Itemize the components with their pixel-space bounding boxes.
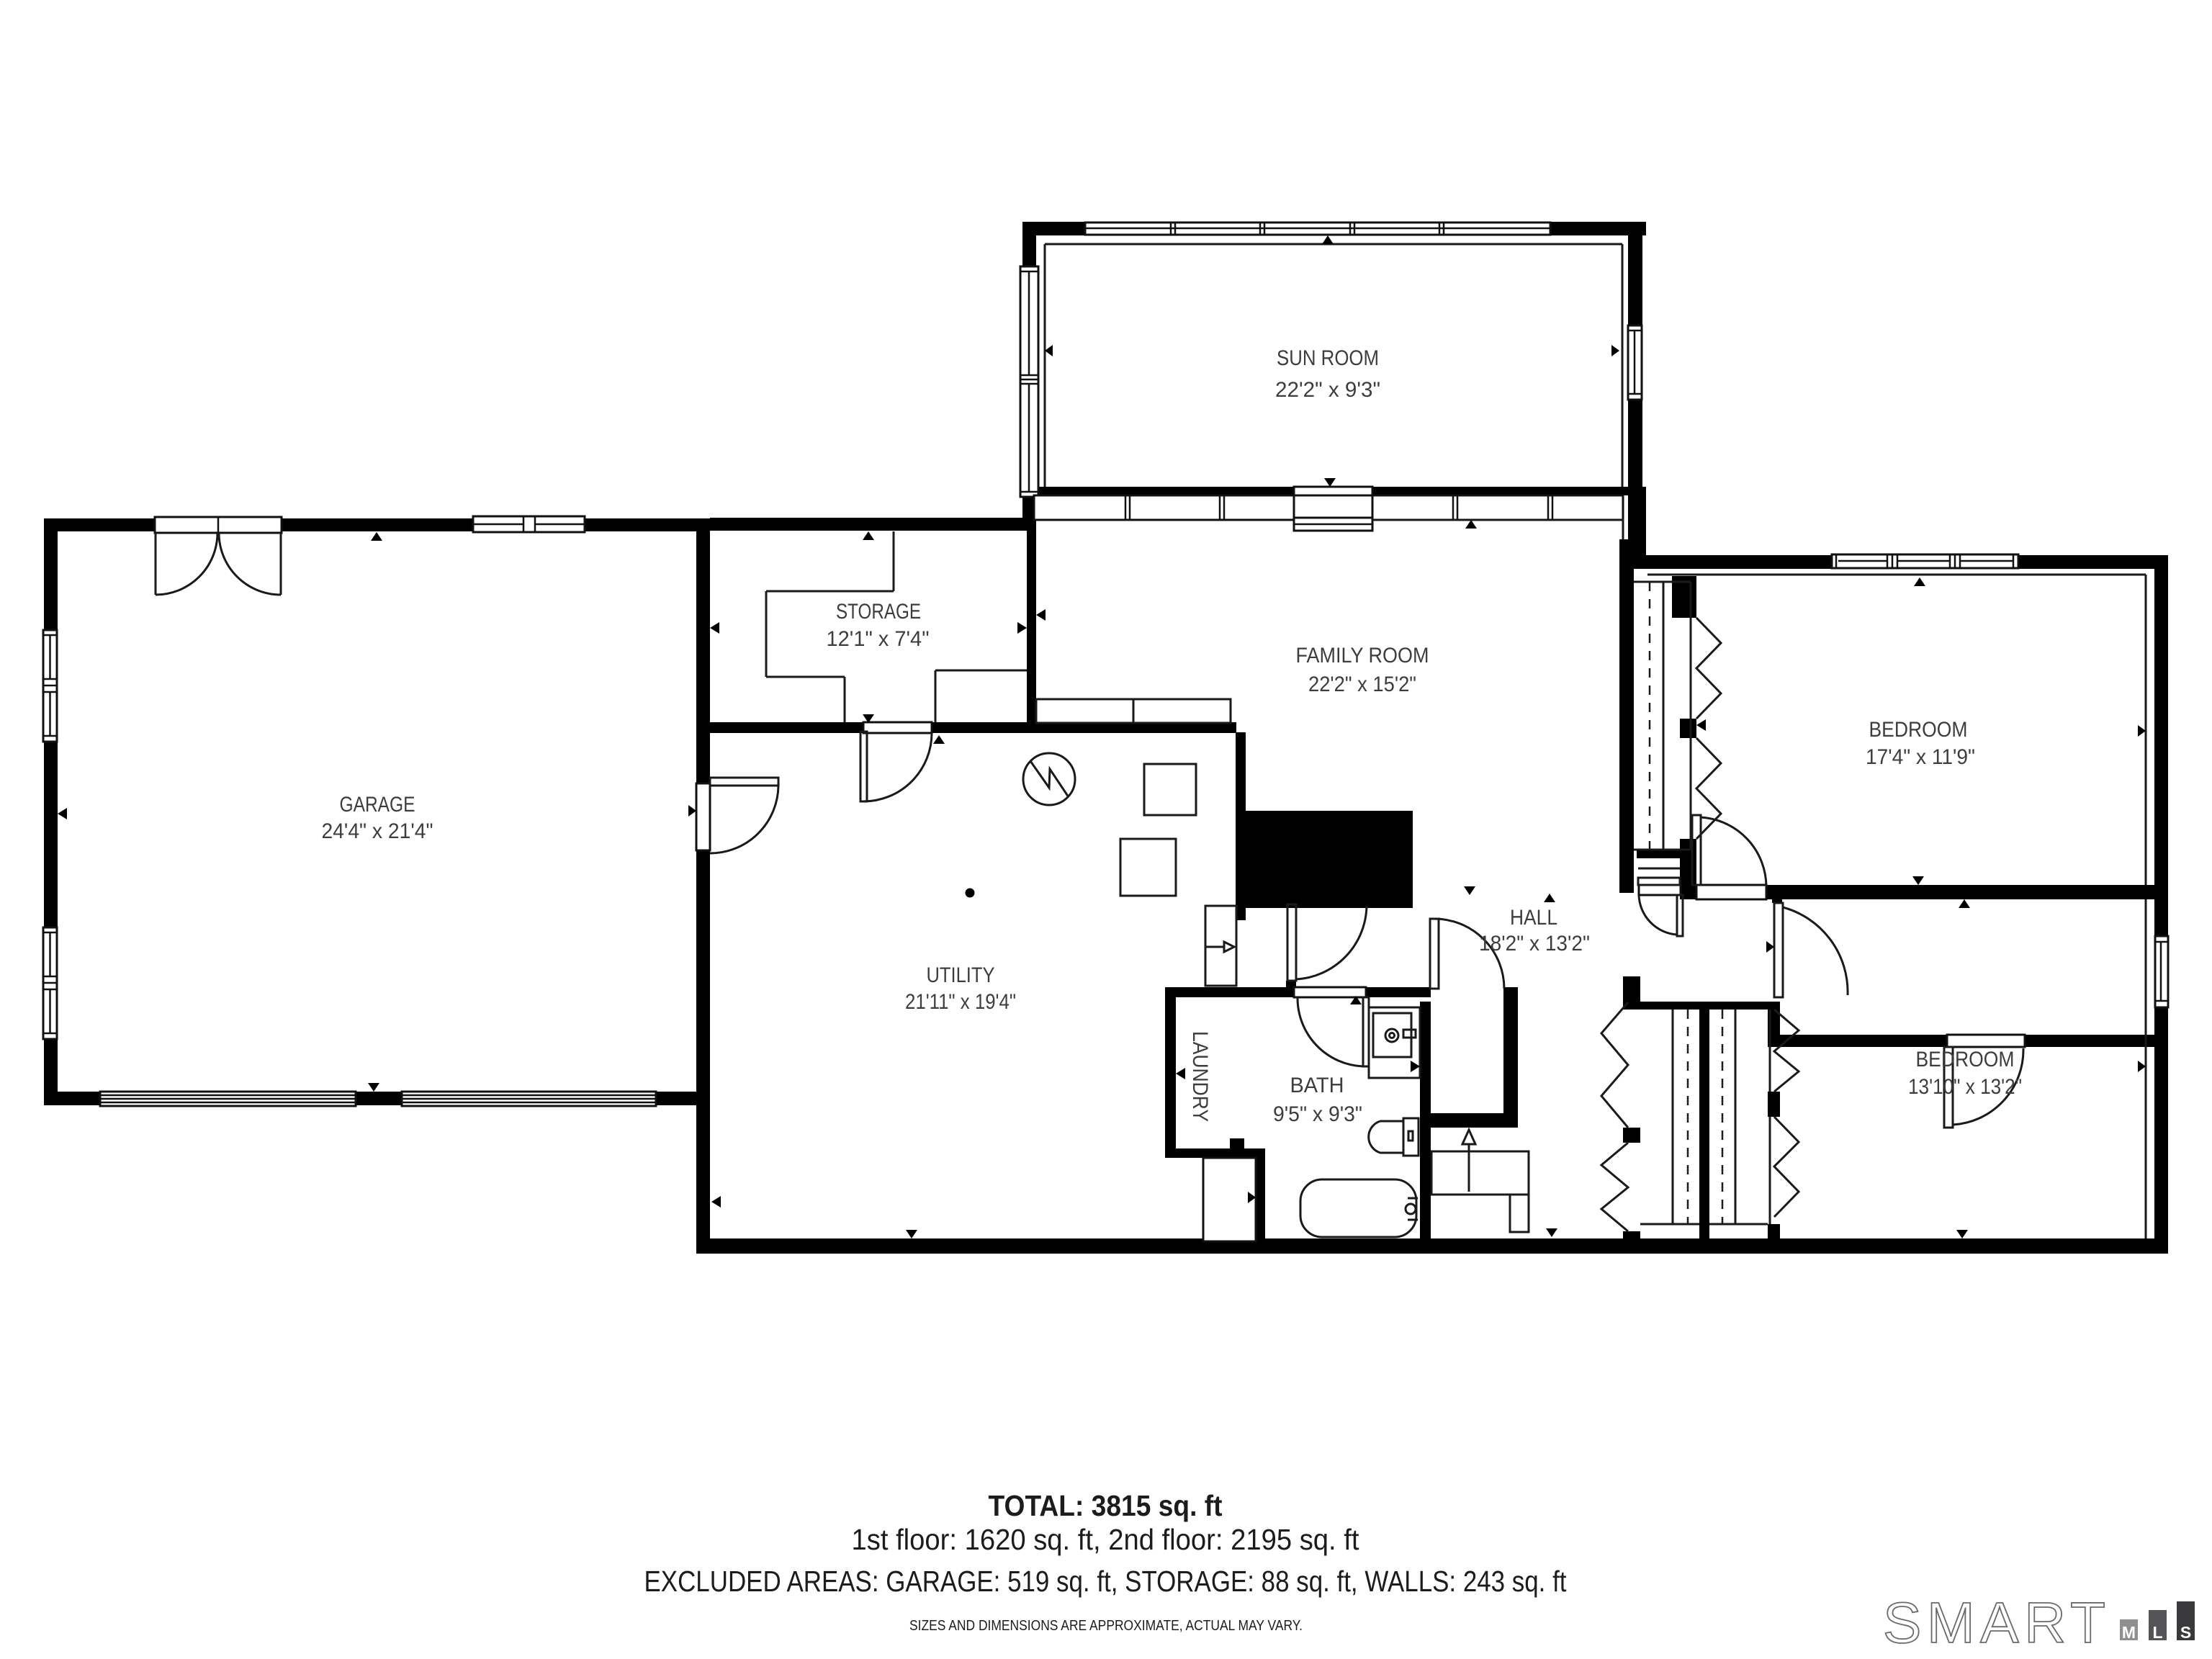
svg-text:SMART: SMART [1883, 1591, 2113, 1655]
svg-text:BATH: BATH [1290, 1074, 1344, 1097]
svg-text:L: L [2152, 1623, 2162, 1642]
svg-text:22'2" x 9'3": 22'2" x 9'3" [1275, 378, 1380, 402]
svg-text:9'5" x 9'3": 9'5" x 9'3" [1273, 1102, 1362, 1126]
svg-text:1st floor: 1620 sq. ft, 2nd fl: 1st floor: 1620 sq. ft, 2nd floor: 2195 … [852, 1523, 1360, 1556]
svg-text:LAUNDRY: LAUNDRY [1188, 1031, 1212, 1122]
svg-text:22'2" x 15'2": 22'2" x 15'2" [1308, 673, 1416, 696]
svg-text:24'4" x 21'4": 24'4" x 21'4" [322, 819, 433, 843]
svg-text:S: S [2180, 1623, 2191, 1642]
svg-text:12'1" x 7'4": 12'1" x 7'4" [827, 627, 930, 651]
svg-text:17'4" x 11'9": 17'4" x 11'9" [1866, 745, 1975, 769]
svg-text:FAMILY ROOM: FAMILY ROOM [1296, 644, 1429, 667]
svg-text:EXCLUDED AREAS: GARAGE: 519 sq: EXCLUDED AREAS: GARAGE: 519 sq. ft, STOR… [644, 1565, 1568, 1598]
svg-text:TOTAL: 3815 sq. ft: TOTAL: 3815 sq. ft [989, 1489, 1223, 1522]
svg-text:BEDROOM: BEDROOM [1916, 1048, 2015, 1071]
svg-text:GARAGE: GARAGE [340, 793, 415, 817]
svg-text:21'11" x 19'4": 21'11" x 19'4" [905, 990, 1016, 1014]
svg-text:SIZES AND DIMENSIONS ARE APPRO: SIZES AND DIMENSIONS ARE APPROXIMATE, AC… [909, 1617, 1303, 1634]
svg-text:13'10" x 13'2": 13'10" x 13'2" [1908, 1075, 2022, 1099]
svg-text:M: M [2122, 1623, 2136, 1642]
svg-text:SUN ROOM: SUN ROOM [1277, 346, 1379, 370]
svg-text:STORAGE: STORAGE [836, 600, 921, 624]
svg-text:18'2" x 13'2": 18'2" x 13'2" [1479, 932, 1590, 956]
svg-text:UTILITY: UTILITY [927, 963, 995, 987]
svg-text:BEDROOM: BEDROOM [1869, 718, 1968, 742]
svg-text:HALL: HALL [1510, 906, 1557, 930]
